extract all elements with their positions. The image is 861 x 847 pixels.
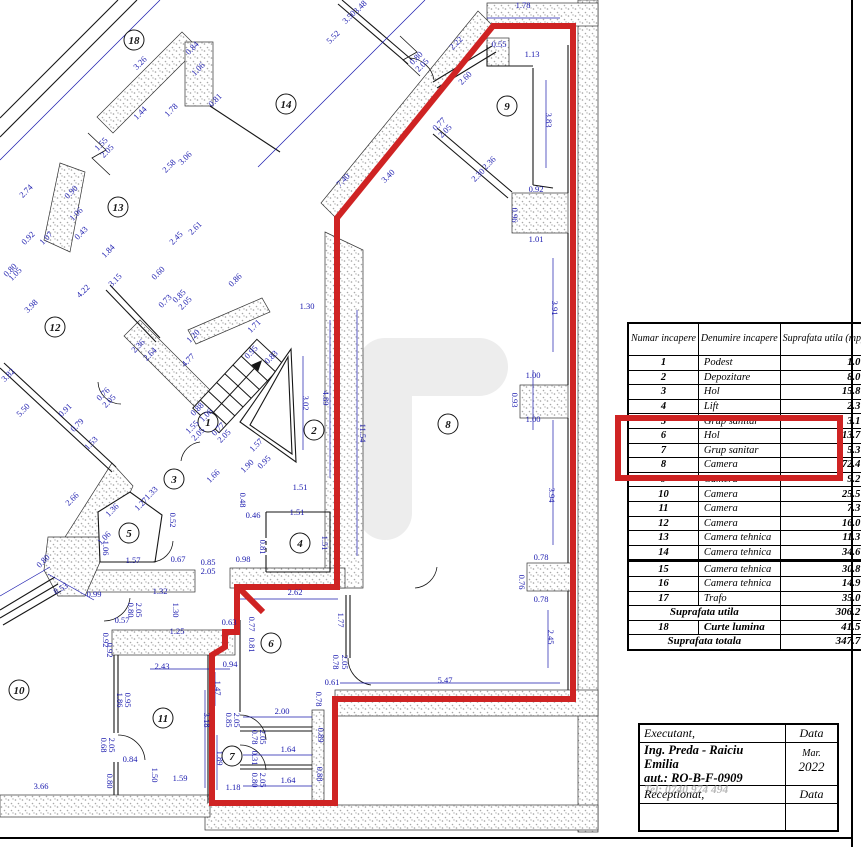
executant-name: Ing. Preda - Raiciu Emilia: [644, 744, 781, 772]
table-cell: 14.9: [780, 576, 861, 591]
dimension-label: 2.43: [155, 661, 170, 671]
table-cell: Suprafata utila: [628, 606, 780, 621]
table-cell: 4: [628, 399, 698, 414]
dimension-label: 1.78: [516, 0, 531, 10]
data-label: Data: [786, 725, 837, 742]
table-cell: 13.7: [780, 428, 861, 443]
dimension-label: 0.88: [315, 767, 325, 782]
area-row: 2Depozitare8.0: [628, 370, 861, 385]
dimension-label: 0.77: [247, 617, 257, 632]
dimension-label: 0.46: [246, 510, 261, 520]
dimension-label: 0.81: [247, 638, 257, 653]
table-cell: 7: [628, 443, 698, 458]
dimension-label: 0.80: [105, 774, 115, 789]
table-cell: Suprafata totala: [628, 635, 780, 650]
table-cell: 2.3: [780, 399, 861, 414]
svg-text:13: 13: [113, 202, 125, 214]
room-number-6: 6: [261, 633, 281, 653]
room-number-14: 14: [276, 94, 296, 114]
table-cell: Camera tehnica: [698, 531, 780, 546]
dimension-label: 1.89: [215, 751, 225, 766]
date-year: 2022: [790, 759, 833, 775]
col-header-suprafata: Suprafata utila (mp): [780, 323, 861, 356]
dimension-label: 0.79: [68, 416, 86, 434]
table-cell: 16.0: [780, 516, 861, 531]
dimension-label: 2.05: [232, 713, 242, 728]
area-row: 4Lift2.3: [628, 399, 861, 414]
room-number-11: 11: [153, 708, 173, 728]
dimension-label: 2.74: [17, 182, 35, 200]
dimension-label: 5.47: [438, 675, 453, 685]
table-cell: Hol: [698, 385, 780, 400]
table-cell: Camera: [698, 501, 780, 516]
svg-text:12: 12: [50, 322, 62, 334]
room-number-13: 13: [108, 197, 128, 217]
dimension-label: 3.66: [34, 781, 49, 791]
table-cell: 34.6: [780, 545, 861, 561]
area-row: 16Camera tehnica14.9: [628, 576, 861, 591]
dimension-label: 5.52: [324, 28, 342, 46]
table-cell: 10: [628, 487, 698, 502]
col-header-numar: Numar incapere: [628, 323, 698, 356]
dimension-label: 0.93: [510, 393, 520, 408]
table-cell: Depozitare: [698, 370, 780, 385]
dimension-label: 1.64: [281, 744, 297, 754]
dimension-label: 0.91: [56, 401, 74, 419]
table-cell: 13: [628, 531, 698, 546]
data-empty-cell: [786, 804, 837, 832]
dimension-label: 3.91: [550, 301, 560, 316]
table-cell: 9: [628, 472, 698, 487]
dimension-label: 0.76: [517, 575, 527, 590]
dimension-label: 1.90: [238, 457, 256, 475]
table-cell: 7.3: [780, 501, 861, 516]
svg-text:18: 18: [129, 35, 141, 47]
table-cell: 5: [628, 414, 698, 429]
executant-label: Executant,: [640, 725, 786, 742]
dimension-label: 1.30: [171, 603, 181, 618]
table-cell: 9.2: [780, 472, 861, 487]
sheet-border-right: [851, 0, 853, 847]
dimension-label: 1.25: [170, 626, 185, 636]
dimension-label: 2.45: [167, 229, 185, 247]
receptionat-empty-cell: [640, 804, 786, 832]
dimension-label: 2.05: [258, 773, 268, 788]
table-cell: 3: [628, 385, 698, 400]
room-number-3: 3: [164, 469, 184, 489]
table-cell: 8: [628, 458, 698, 473]
dimension-label: 3.02: [301, 396, 311, 411]
dimension-label: 0.92: [529, 184, 544, 194]
room-number-8: 8: [438, 414, 458, 434]
room-number-18: 18: [124, 30, 144, 50]
svg-text:10: 10: [14, 685, 26, 697]
dimension-label: 0.94: [223, 659, 239, 669]
svg-text:2: 2: [310, 425, 317, 437]
table-cell: Grup sanitar: [698, 443, 780, 458]
dimension-label: 0.81: [258, 540, 268, 555]
dimension-label: 1.01: [529, 234, 544, 244]
svg-text:11: 11: [158, 713, 168, 725]
table-cell: Camera: [698, 487, 780, 502]
table-cell: 347.7: [780, 635, 861, 650]
title-block: Executant, Data Ing. Preda - Raiciu Emil…: [638, 723, 839, 832]
dimension-label: 1.13: [525, 49, 540, 59]
dimension-label: 0.78: [534, 552, 549, 562]
dimension-label: 0.48: [238, 493, 248, 508]
svg-text:14: 14: [281, 99, 293, 111]
table-cell: 15.8: [780, 385, 861, 400]
area-row: 8Camera72.4: [628, 458, 861, 473]
table-cell: 5.3: [780, 443, 861, 458]
dimension-label: 1.57: [126, 555, 141, 565]
dimension-label: 2.36: [480, 154, 498, 172]
table-cell: Camera tehnica: [698, 545, 780, 561]
table-cell: 14: [628, 545, 698, 561]
area-row: 10Camera25.5: [628, 487, 861, 502]
svg-text:7: 7: [229, 751, 235, 763]
dimension-label: 2.05: [201, 566, 216, 576]
dimension-label: 1.57: [247, 436, 265, 454]
svg-text:3: 3: [170, 474, 177, 486]
dimension-label: 3.15: [106, 271, 124, 289]
table-cell: 306.2: [780, 606, 861, 621]
wall-hatching: [0, 0, 598, 832]
dimension-label: 1.66: [204, 467, 222, 485]
area-table: Numar incapere Denumire incapere Suprafa…: [627, 322, 861, 651]
dimension-label: 3.40: [379, 167, 397, 185]
dimension-label: 3.94: [547, 488, 557, 504]
dimension-label: 0.86: [226, 271, 244, 289]
dimension-label: 0.78: [314, 692, 324, 707]
dimension-label: 1.00: [526, 414, 541, 424]
table-cell: 17: [628, 591, 698, 606]
area-row: 1Podest1.0: [628, 356, 861, 371]
area-row: 17Trafo35.0: [628, 591, 861, 606]
dimension-label: 0.63: [222, 617, 237, 627]
table-cell: 8.0: [780, 370, 861, 385]
dimension-label: 0.55: [492, 39, 507, 49]
summary-row: Suprafata utila306.2: [628, 606, 861, 621]
table-cell: 35.0: [780, 591, 861, 606]
summary-row: 18Curte lumina41.5: [628, 620, 861, 635]
table-cell: Curte lumina: [698, 620, 780, 635]
dimension-label: 0.95: [123, 693, 133, 708]
dimension-label: 4.89: [321, 391, 331, 406]
table-cell: 30.8: [780, 561, 861, 577]
table-cell: Trafo: [698, 591, 780, 606]
dimension-label: 1.50: [150, 768, 160, 783]
dimension-label: 1.30: [300, 301, 315, 311]
area-row: 5Grup sanitar3.1: [628, 414, 861, 429]
table-cell: Camera: [698, 516, 780, 531]
dimension-label: 2.05: [107, 738, 117, 753]
dimension-label: 2.66: [63, 490, 81, 508]
room-number-12: 12: [45, 317, 65, 337]
area-row: 11Camera7.3: [628, 501, 861, 516]
table-cell: 25.5: [780, 487, 861, 502]
table-cell: 18: [628, 620, 698, 635]
floor-plan-sheet: { "colors":{"dim_blue":"#1a1aae","highli…: [0, 0, 861, 847]
table-cell: 1: [628, 356, 698, 371]
dimension-label: 0.52: [168, 513, 178, 528]
dimension-label: 1.51: [293, 482, 308, 492]
dimension-label: 0.31: [250, 751, 260, 766]
area-row: 12Camera16.0: [628, 516, 861, 531]
dimension-label: 0.73: [156, 292, 174, 310]
area-row: 9Camera9.2: [628, 472, 861, 487]
dimension-label: 0.92: [101, 633, 111, 648]
dimension-label: 2.05: [258, 730, 268, 745]
col-header-denumire: Denumire incapere: [698, 323, 780, 356]
table-cell: 12: [628, 516, 698, 531]
table-cell: Camera tehnica: [698, 576, 780, 591]
table-cell: 3.1: [780, 414, 861, 429]
room-number-5: 5: [119, 523, 139, 543]
dimension-label: 0.89: [316, 728, 326, 743]
table-cell: 11.3: [780, 531, 861, 546]
dimension-label: 1.59: [173, 773, 188, 783]
dimension-label: 1.77: [336, 613, 346, 628]
date-month: Mar.: [790, 748, 833, 759]
dimension-label: 1.84: [99, 242, 117, 260]
area-row: 14Camera tehnica34.6: [628, 545, 861, 561]
svg-text:6: 6: [268, 638, 274, 650]
dimension-label: 1.64: [281, 775, 297, 785]
dimension-label: 1.32: [153, 586, 168, 596]
data-label-2: Data: [786, 786, 837, 803]
dimension-label: 2.45: [546, 630, 556, 645]
dimension-label: 0.61: [325, 677, 340, 687]
dimension-label: 2.62: [288, 587, 303, 597]
area-row: 7Grup sanitar5.3: [628, 443, 861, 458]
dimension-label: 4.22: [74, 282, 92, 300]
table-cell: 16: [628, 576, 698, 591]
dimension-label: 2.05: [340, 655, 350, 670]
receptionat-label: Receptionat,: [640, 786, 786, 803]
dimension-label: 5.50: [14, 401, 32, 419]
table-cell: 1.0: [780, 356, 861, 371]
room-number-4: 4: [290, 533, 310, 553]
dimension-label: 0.96: [510, 208, 520, 223]
dimension-label: 0.60: [149, 264, 167, 282]
dimension-label: 0.78: [534, 594, 549, 604]
dimension-label: 2.05: [134, 603, 144, 618]
dimension-label: 0.92: [19, 229, 37, 247]
dimension-label: 1.51: [290, 507, 305, 517]
dimension-label: 0.67: [171, 554, 186, 564]
area-row: 3Hol15.8: [628, 385, 861, 400]
area-row: 13Camera tehnica11.3: [628, 531, 861, 546]
table-cell: Podest: [698, 356, 780, 371]
room-number-9: 9: [497, 96, 517, 116]
dimension-label: 0.95: [255, 453, 273, 471]
svg-text:5: 5: [126, 528, 132, 540]
svg-text:9: 9: [504, 101, 510, 113]
table-cell: 72.4: [780, 458, 861, 473]
table-cell: Camera: [698, 458, 780, 473]
dimension-label: 2.00: [275, 706, 290, 716]
dimension-label: 2.61: [186, 219, 204, 237]
dimension-label: 11.54: [358, 424, 368, 444]
dimension-label: 1.18: [226, 782, 241, 792]
area-row: 6Hol13.7: [628, 428, 861, 443]
dimension-label: 0.84: [123, 754, 139, 764]
room-number-10: 10: [9, 680, 29, 700]
dimension-label: 3.83: [544, 113, 554, 128]
table-cell: Camera tehnica: [698, 561, 780, 577]
svg-text:8: 8: [445, 419, 451, 431]
dimension-label: 3.06: [176, 149, 194, 167]
watermark-logo: [358, 338, 508, 540]
table-cell: 11: [628, 501, 698, 516]
table-cell: 15: [628, 561, 698, 577]
summary-row: Suprafata totala347.7: [628, 635, 861, 650]
dimension-label: 3.98: [22, 297, 40, 315]
table-cell: 2: [628, 370, 698, 385]
dimension-label: 1.51: [320, 536, 330, 551]
table-cell: 6: [628, 428, 698, 443]
table-cell: Grup sanitar: [698, 414, 780, 429]
table-cell: Lift: [698, 399, 780, 414]
dimension-label: 0.98: [236, 554, 251, 564]
dimension-label: 1.06: [101, 541, 111, 556]
area-row: 15Camera tehnica30.8: [628, 561, 861, 577]
dimension-label: 1.78: [162, 101, 180, 119]
dimension-label: 0.78: [331, 655, 341, 670]
svg-text:4: 4: [296, 538, 303, 550]
dimension-label: 1.47: [213, 681, 223, 696]
table-cell: 41.5: [780, 620, 861, 635]
dimension-label: 3.18: [202, 713, 212, 728]
table-cell: Hol: [698, 428, 780, 443]
sheet-border-bottom: [0, 837, 853, 839]
room-number-2: 2: [304, 420, 324, 440]
table-cell: Camera: [698, 472, 780, 487]
dimension-label: 0.99: [87, 589, 102, 599]
dimension-label: 1.00: [526, 370, 541, 380]
executant-authorization: aut.: RO-B-F-0909: [644, 772, 781, 786]
